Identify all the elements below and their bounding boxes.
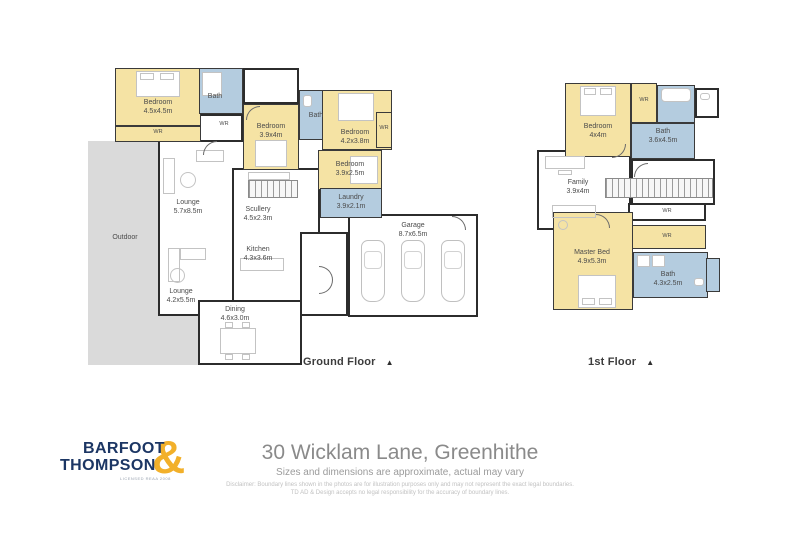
sofa-icon (180, 248, 206, 260)
lounge-2-label: Lounge 4.2x5.5m (150, 287, 212, 305)
outdoor-label: Outdoor (90, 233, 160, 242)
wr-strip-2-label: WR (628, 233, 706, 240)
scullery-label: Scullery 4.5x2.3m (228, 205, 288, 223)
chair-icon (558, 220, 568, 230)
bathtub-icon (661, 88, 691, 102)
first-bath-label: Bath 3.6x4.5m (623, 127, 703, 145)
pillow-icon (582, 298, 595, 305)
sofa-icon (163, 158, 175, 194)
pillow-icon (160, 73, 174, 80)
master-bath-label: Bath 4.3x2.5m (628, 270, 708, 288)
ground-floor-caption: Ground Floor▲ (303, 356, 394, 368)
disclaimer-line-1: Disclaimer: Boundary lines shown in the … (150, 482, 650, 488)
pillow-icon (599, 298, 612, 305)
north-arrow-icon: ▲ (646, 358, 654, 367)
logo-tagline: LICENSED REAA 2008 (120, 476, 171, 481)
family-label: Family 3.9x4m (540, 178, 616, 196)
master-bedroom-label: Master Bed 4.9x5.3m (552, 248, 632, 266)
floorplan-page: Outdoor WR Bedroom 4.5x4.5m WR Bath (0, 0, 800, 534)
lounge-1-label: Lounge 5.7x8.5m (160, 198, 216, 216)
bedroom-2-label: Bedroom 3.9x4m (231, 122, 311, 140)
chair-icon (225, 354, 233, 360)
coffee-table-icon (170, 268, 185, 283)
pillow-icon (140, 73, 154, 80)
north-arrow-icon: ▲ (386, 358, 394, 367)
bedroom-3-label: Bedroom 4.2x3.8m (315, 128, 395, 146)
dining-table-icon (220, 328, 256, 354)
bath-1-label: Bath (193, 92, 237, 101)
bed-icon (255, 140, 287, 167)
kitchen-label: Kitchen 4.3x3.6m (228, 245, 288, 263)
vanity-icon (652, 255, 665, 267)
barfoot-thompson-logo: & BARFOOT THOMPSON LICENSED REAA 2008 (60, 438, 200, 488)
bath-2-label: Bath (294, 111, 338, 120)
dining-label: Dining 4.6x3.0m (205, 305, 265, 323)
toilet-icon (303, 95, 312, 107)
bench-icon (248, 172, 290, 180)
logo-thompson: THOMPSON (60, 457, 156, 475)
disclaimer-line-2: TD AD & Design accepts no legal responsi… (150, 490, 650, 496)
car-icon (401, 240, 425, 302)
wr-strip-1-label: WR (628, 208, 706, 215)
master-bath-ext (706, 258, 720, 292)
logo-barfoot: BARFOOT (83, 440, 165, 458)
bed-icon (338, 93, 374, 121)
laundry-label: Laundry 3.9x2.1m (311, 193, 391, 211)
dimensions-note: Sizes and dimensions are approximate, ac… (200, 467, 600, 478)
desk-icon (545, 156, 585, 169)
vanity-icon (637, 255, 650, 267)
tv-icon (558, 170, 572, 175)
car-icon (361, 240, 385, 302)
pillow-icon (584, 88, 596, 95)
bedroom-1-wr-label: WR (115, 129, 201, 136)
car-icon (441, 240, 465, 302)
chair-icon (242, 354, 250, 360)
bedroom-4-label: Bedroom 3.9x2.5m (310, 160, 390, 178)
sink-icon (700, 93, 710, 100)
stairs-icon (248, 180, 298, 198)
bedroom-1-label: Bedroom 4.5x4.5m (118, 98, 198, 116)
sofa-icon (552, 205, 596, 218)
hall-top-block (243, 68, 299, 104)
garage-label: Garage 8.7x6.5m (373, 221, 453, 239)
property-address-title: 30 Wicklam Lane, Greenhithe (200, 441, 600, 465)
stairs-icon (605, 178, 713, 198)
pillow-icon (600, 88, 612, 95)
first-wr-label: WR (631, 97, 657, 104)
coffee-table-icon (180, 172, 196, 188)
first-floor-caption: 1st Floor▲ (588, 356, 654, 368)
